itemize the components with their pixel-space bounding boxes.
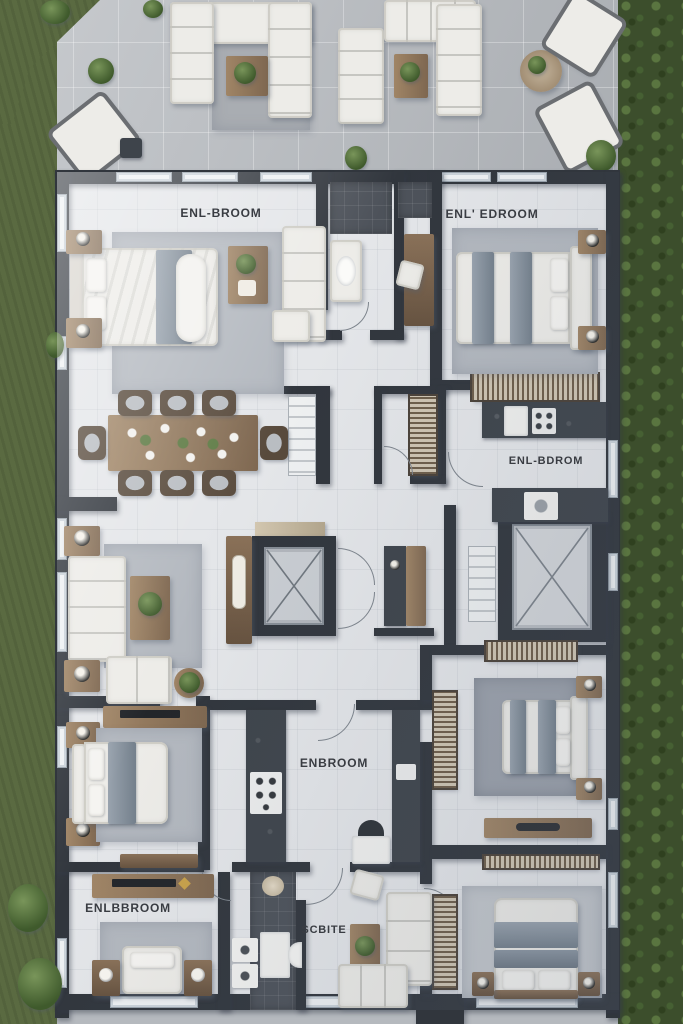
dining-chair-6 — [202, 470, 236, 496]
wall-bedroomN-top-b — [574, 645, 606, 655]
closet-wall-left — [374, 386, 382, 484]
elevator-shaft — [264, 547, 324, 625]
dining-table — [108, 415, 258, 471]
tv-P — [112, 879, 176, 887]
bench-L — [120, 854, 198, 868]
desk-N-tray — [516, 823, 560, 831]
ottoman-A — [272, 310, 310, 342]
kitchenR-fridge — [504, 406, 528, 436]
lamp-O-2 — [583, 977, 595, 989]
bath-B-shower — [330, 182, 392, 234]
dining-chair-4 — [118, 470, 152, 496]
lamp-O-1 — [477, 977, 489, 989]
skylight-shaft — [512, 524, 592, 630]
kitchenC-sink — [396, 764, 416, 780]
window-top-4 — [441, 172, 491, 182]
window-top-1 — [116, 172, 172, 182]
plant-stand-K-plant — [179, 672, 200, 693]
bed-N-throw-2 — [538, 700, 556, 774]
staircase-dining — [288, 396, 316, 476]
kitchenC-counter-right — [392, 710, 420, 862]
side-table-left — [120, 138, 142, 158]
dining-chair-5 — [160, 470, 194, 496]
coffee-table-A-plant — [236, 254, 256, 274]
closet-shelving — [410, 396, 436, 474]
bed-O-blanket-1 — [494, 922, 578, 948]
outdoor-sofa-right-1 — [338, 28, 384, 124]
lamp-N-2 — [584, 781, 596, 793]
lamp-L-2 — [76, 823, 90, 837]
hall-wall-bottom — [374, 628, 434, 636]
hall-desk-wood — [406, 546, 426, 626]
corner-plant-bottom-left-2 — [18, 958, 62, 1010]
window-right-3 — [608, 798, 618, 830]
bed-O-blanket-2 — [494, 950, 578, 968]
bed-O-pillow-2 — [538, 970, 570, 990]
dining-chair-2 — [160, 390, 194, 416]
lamp-L-1 — [76, 726, 90, 740]
wall-kitchenC-top-a — [210, 700, 316, 710]
lamp-D-2 — [586, 330, 599, 343]
bath-Q-sink-round — [262, 876, 284, 896]
label-suite-bottom-center: SCBITE — [301, 924, 346, 936]
staircase-skylight — [468, 546, 496, 622]
label-bedroom-top-right: ENL' EDROOM — [446, 207, 539, 221]
dining-chair-1 — [118, 390, 152, 416]
hall-desk — [384, 546, 406, 626]
bed-L-pillow-1 — [88, 748, 104, 780]
label-bedroom-bottom-left: ENLBBROOM — [85, 901, 171, 915]
coffee-table-A-tray — [238, 280, 256, 296]
coffee-table-plant — [234, 62, 256, 84]
closet-wall-top — [374, 386, 446, 394]
wall-bath-bottom-b — [370, 330, 404, 340]
kitchenC-fixture — [352, 836, 390, 864]
bed-N-throw-1 — [510, 700, 526, 774]
coffee-table-K-plant — [138, 592, 162, 616]
slatted-dresser-top-right — [472, 374, 598, 400]
kitchenR-washer — [524, 492, 558, 520]
kitchenC-stove — [250, 772, 282, 814]
bed-O-headboard — [494, 990, 578, 999]
loveseat-K — [106, 656, 172, 704]
closet-wall-bottom — [410, 476, 446, 484]
bed-D-throw-1 — [472, 252, 494, 344]
wall-stub-mid-left — [55, 497, 117, 511]
round-table-plant — [528, 56, 546, 74]
lamp-P-2 — [191, 968, 205, 982]
corner-plant-bottom-left — [8, 884, 48, 932]
side-table-K-1-lamp — [74, 530, 90, 546]
elevator-shelf — [255, 522, 325, 536]
tv-L — [120, 710, 180, 718]
bed-N-pillow-1 — [556, 706, 570, 734]
bed-D-throw-2 — [510, 252, 532, 344]
dining-chair-7 — [78, 426, 106, 460]
window-bottom-1 — [110, 996, 198, 1008]
window-right-1 — [608, 440, 618, 498]
wall-bedroomN-top-a — [432, 645, 488, 655]
bed-N-pillow-2 — [556, 738, 570, 766]
lamp-P-1 — [99, 968, 113, 982]
label-kitchen-center: ENBROOM — [300, 756, 368, 770]
wall-kitchenC-right-b — [420, 742, 432, 884]
skylight-wall-left — [444, 505, 456, 645]
terrace-plant-4 — [345, 146, 367, 170]
bath-Q-washer-2 — [232, 964, 258, 988]
coffee-table-plant-2 — [400, 62, 420, 82]
dining-chair-8 — [260, 426, 288, 460]
bed-D-pillow-1 — [550, 258, 568, 292]
wall-kitchenC-right-a — [420, 645, 432, 700]
window-top-2 — [182, 172, 238, 182]
console-decor-candelabra — [233, 556, 245, 608]
sofa-R-bottom — [338, 964, 408, 1008]
bookshelf-N-left — [434, 692, 456, 788]
window-left-4 — [57, 572, 67, 652]
bookshelf-O-top — [484, 856, 598, 868]
wall-bottom-band-b — [232, 862, 310, 872]
kitchenR-stove — [532, 408, 556, 434]
terrace-plant-5 — [586, 140, 616, 172]
lamp-D-1 — [586, 234, 599, 247]
hedge-right-strip — [618, 0, 683, 1024]
terrace-plant-3 — [143, 0, 163, 18]
wall-kitchenC-top-b — [356, 700, 440, 710]
hall-C-mat — [398, 182, 432, 218]
bed-D-pillow-2 — [550, 296, 568, 330]
terrace-plant-1 — [40, 0, 70, 24]
side-table-K-2-lamp — [74, 666, 90, 682]
window-right-4 — [608, 872, 618, 928]
sofa-K — [68, 556, 126, 662]
coffee-table-R-plant — [355, 936, 375, 956]
bed-N-headboard — [570, 696, 588, 780]
label-kitchen-mid-right: ENL-BDROM — [509, 455, 583, 467]
window-right-2 — [608, 553, 618, 591]
lamp-N-1 — [584, 679, 596, 691]
bath-B-sink — [336, 256, 356, 286]
floor-plan-scene: ENL-BROOM ENL' EDROOM ENL-BDROM ENBROOM … — [0, 0, 683, 1024]
dining-chair-3 — [202, 390, 236, 416]
outdoor-sofa-left-arm — [170, 2, 214, 104]
label-bedroom-top-left: ENL-BROOM — [180, 206, 261, 220]
bath-Q-washer-1 — [232, 938, 258, 962]
bookshelf-N-top — [486, 642, 576, 660]
lamp-A-2 — [76, 324, 90, 338]
bed-P-pillow — [130, 952, 174, 968]
stairs-wall-right — [316, 386, 330, 484]
outdoor-sofa-right-arm — [268, 2, 312, 118]
wardrobe-O — [434, 896, 456, 988]
lamp-A-1 — [76, 232, 90, 246]
bed-L-blanket — [108, 742, 136, 824]
window-top-3 — [260, 172, 312, 182]
terrace-plant-2 — [88, 58, 114, 84]
hall-desk-lamp — [390, 560, 400, 570]
bath-Q-vanity — [260, 932, 290, 978]
wall-plant-accent — [46, 332, 64, 358]
wall-bottom-stub — [416, 994, 464, 1024]
closet-wall-right — [438, 386, 446, 484]
outdoor-sofa-right-3 — [436, 4, 482, 116]
bed-A-pillow-1 — [86, 258, 106, 292]
bed-L-pillow-2 — [88, 784, 104, 816]
bed-A-duvet-roll — [176, 254, 206, 342]
window-top-5 — [497, 172, 547, 182]
lawn-left-strip — [0, 0, 57, 1024]
bed-O-pillow-1 — [502, 970, 534, 990]
